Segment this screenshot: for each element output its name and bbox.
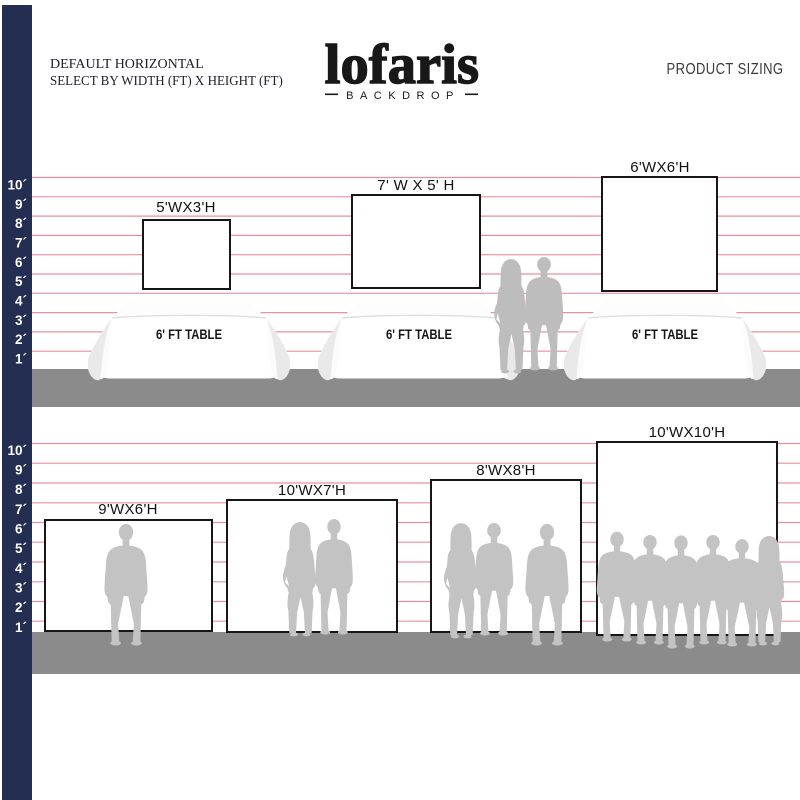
- svg-text:lofaris: lofaris: [325, 34, 480, 96]
- svg-text:10'WX7'H: 10'WX7'H: [278, 482, 346, 499]
- svg-text:9'WX6'H: 9'WX6'H: [98, 501, 158, 518]
- svg-text:7´: 7´: [15, 236, 27, 251]
- svg-text:7´: 7´: [15, 502, 27, 517]
- svg-text:6´: 6´: [15, 522, 27, 537]
- svg-text:10´: 10´: [7, 443, 27, 458]
- svg-text:1´: 1´: [15, 352, 27, 367]
- svg-text:5'WX3'H: 5'WX3'H: [156, 199, 216, 216]
- svg-text:8´: 8´: [15, 216, 27, 231]
- svg-text:2´: 2´: [15, 332, 27, 347]
- svg-text:9´: 9´: [15, 463, 27, 478]
- svg-text:4´: 4´: [15, 561, 27, 576]
- svg-text:6´: 6´: [15, 255, 27, 270]
- svg-text:SELECT BY WIDTH (FT) X HEIGHT: SELECT BY WIDTH (FT) X HEIGHT (FT): [50, 73, 283, 89]
- svg-text:7' W X 5' H: 7' W X 5' H: [377, 177, 454, 194]
- svg-text:1´: 1´: [15, 620, 27, 635]
- svg-text:2´: 2´: [15, 600, 27, 615]
- svg-text:10´: 10´: [7, 178, 27, 193]
- svg-text:BACKDROP: BACKDROP: [346, 90, 460, 102]
- svg-text:5´: 5´: [15, 274, 27, 289]
- svg-text:8'WX8'H: 8'WX8'H: [476, 462, 536, 479]
- svg-text:6'WX6'H: 6'WX6'H: [630, 159, 690, 176]
- svg-text:PRODUCT SIZING: PRODUCT SIZING: [667, 61, 784, 78]
- svg-text:10'WX10'H: 10'WX10'H: [649, 424, 726, 441]
- svg-text:3´: 3´: [15, 581, 27, 596]
- svg-text:3´: 3´: [15, 313, 27, 328]
- svg-text:5´: 5´: [15, 541, 27, 556]
- svg-text:9´: 9´: [15, 197, 27, 212]
- svg-text:4´: 4´: [15, 294, 27, 309]
- svg-text:8´: 8´: [15, 482, 27, 497]
- svg-text:DEFAULT HORIZONTAL: DEFAULT HORIZONTAL: [50, 57, 204, 72]
